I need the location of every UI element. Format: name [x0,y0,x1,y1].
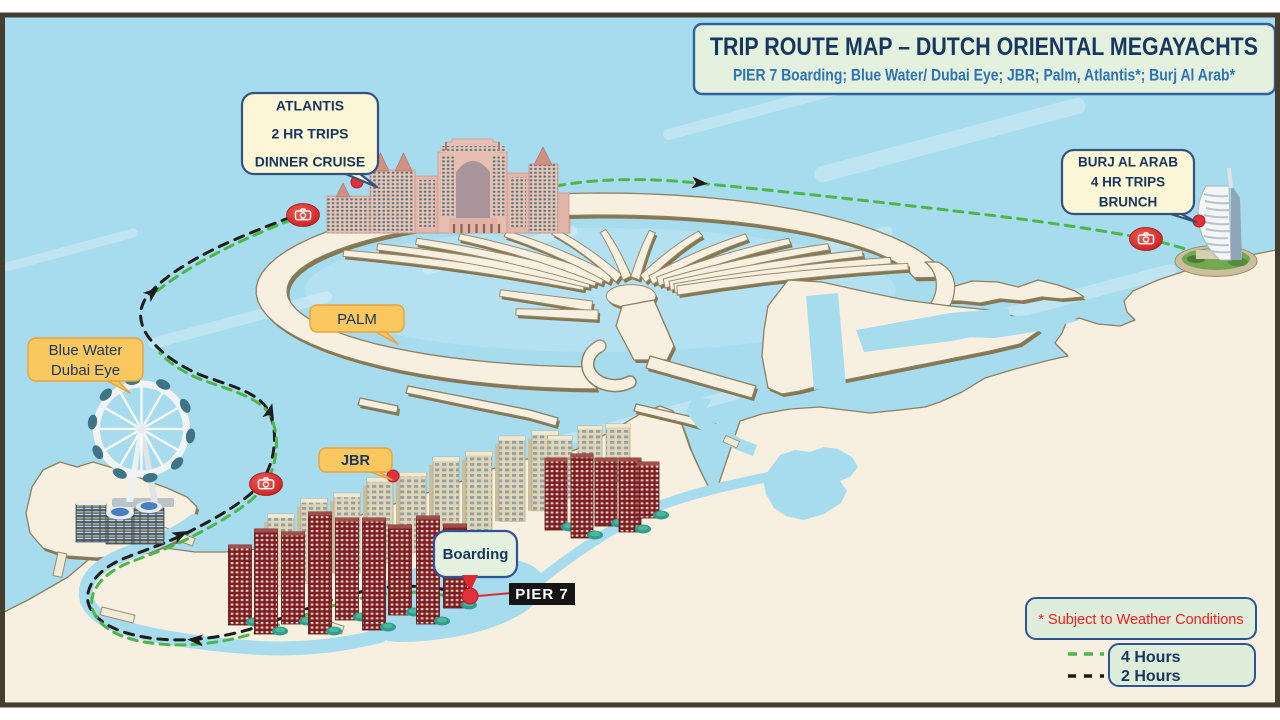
svg-text:Dubai Eye: Dubai Eye [51,362,120,379]
svg-text:PALM: PALM [337,311,377,328]
svg-text:TRIP ROUTE MAP – DUTCH ORIENTA: TRIP ROUTE MAP – DUTCH ORIENTAL MEGAYACH… [710,33,1258,61]
svg-text:PIER 7 Boarding; Blue Water/ D: PIER 7 Boarding; Blue Water/ Dubai Eye; … [733,67,1235,85]
svg-text:DINNER CRUISE: DINNER CRUISE [255,153,365,169]
svg-text:4 Hours: 4 Hours [1121,649,1181,666]
svg-text:Blue Water: Blue Water [49,342,123,359]
svg-text:JBR: JBR [341,453,371,469]
svg-text:* Subject to Weather Condition: * Subject to Weather Conditions [1038,612,1243,628]
svg-text:2 HR TRIPS: 2 HR TRIPS [271,125,348,141]
svg-text:PIER 7: PIER 7 [515,586,569,603]
svg-text:2 Hours: 2 Hours [1121,668,1181,685]
svg-text:Boarding: Boarding [443,546,509,563]
svg-text:ATLANTIS: ATLANTIS [276,97,344,113]
svg-text:BURJ AL ARAB: BURJ AL ARAB [1078,155,1178,170]
svg-text:BRUNCH: BRUNCH [1099,195,1158,210]
svg-text:4 HR TRIPS: 4 HR TRIPS [1091,175,1165,190]
